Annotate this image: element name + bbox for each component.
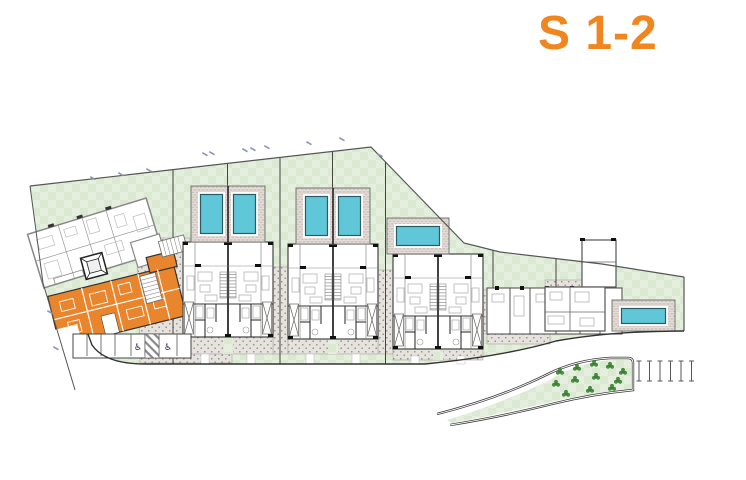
sheet-title: S 1-2 [538,4,738,64]
pool-pair-2 [296,188,370,244]
street-parking-ticks [637,361,695,381]
duplex-block-3 [393,254,483,349]
disabled-parking-icon: ♿ [164,343,172,353]
parking-row: ♿ ♿ [73,334,191,358]
parking-hatched-strip [145,334,159,358]
site-plan-drawing: ♿ ♿ [0,0,746,480]
pool-single-3 [387,218,449,254]
pool-pair-1 [191,186,265,242]
disabled-parking-icon: ♿ [134,343,142,353]
stair-lift-structure [81,253,108,280]
duplex-block-2 [288,244,378,339]
road-island [437,358,633,425]
site-plan-sheet: ♿ ♿ [0,0,746,480]
pool-east [612,300,675,331]
duplex-block-1 [183,242,273,337]
